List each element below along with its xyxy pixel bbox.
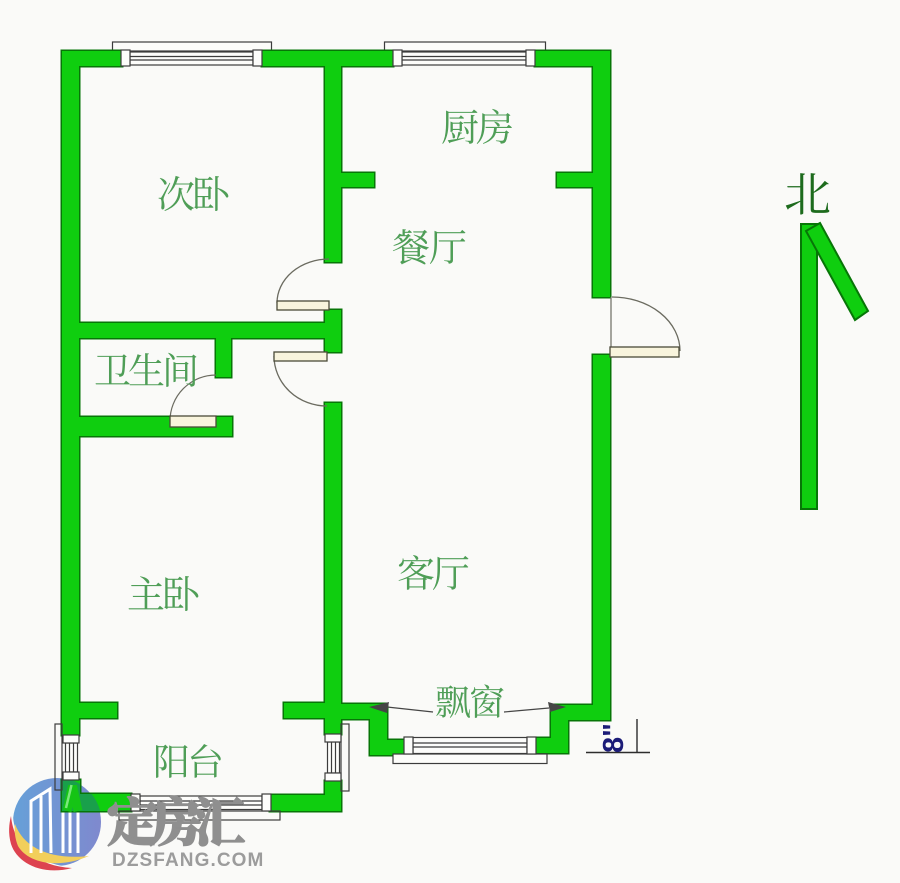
svg-text:DZSFANG.COM: DZSFANG.COM xyxy=(112,850,265,871)
svg-text:8": 8" xyxy=(598,723,630,753)
